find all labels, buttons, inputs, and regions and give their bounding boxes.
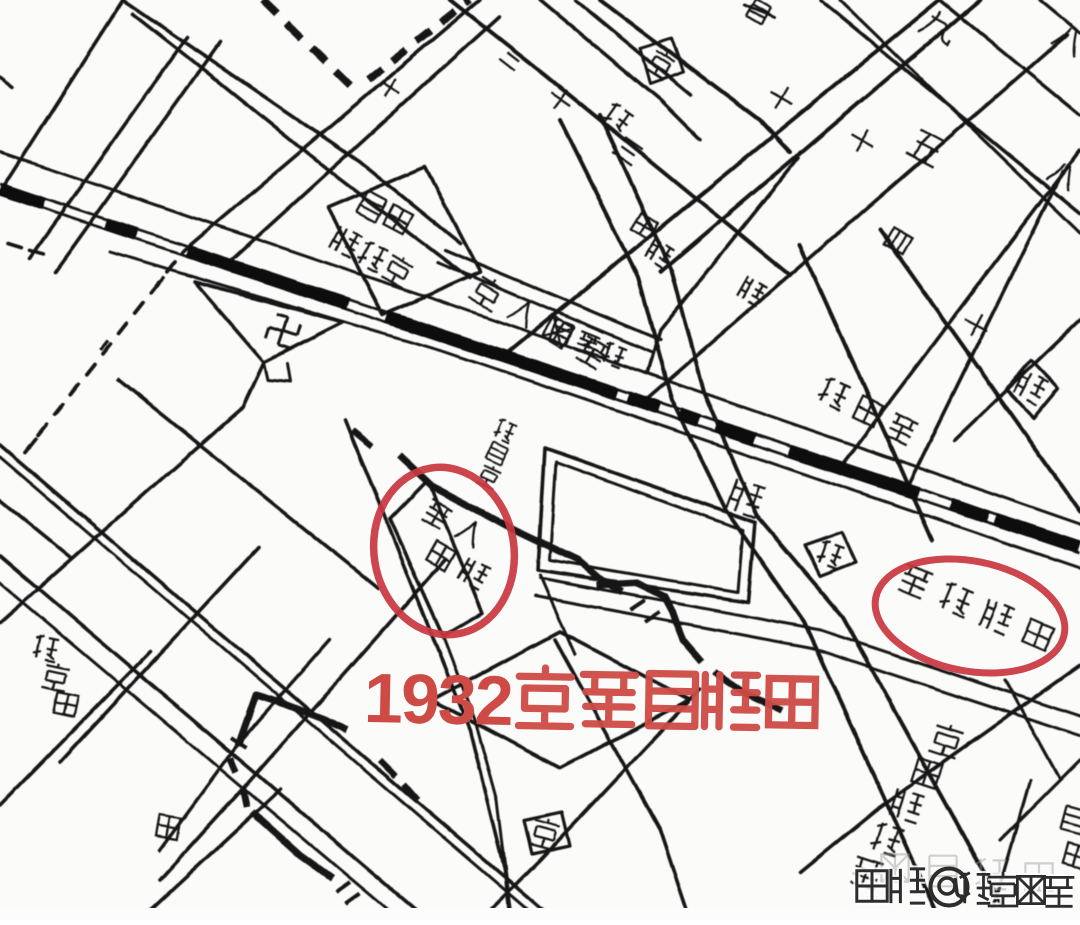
svg-text:1932: 1932 bbox=[363, 659, 512, 740]
